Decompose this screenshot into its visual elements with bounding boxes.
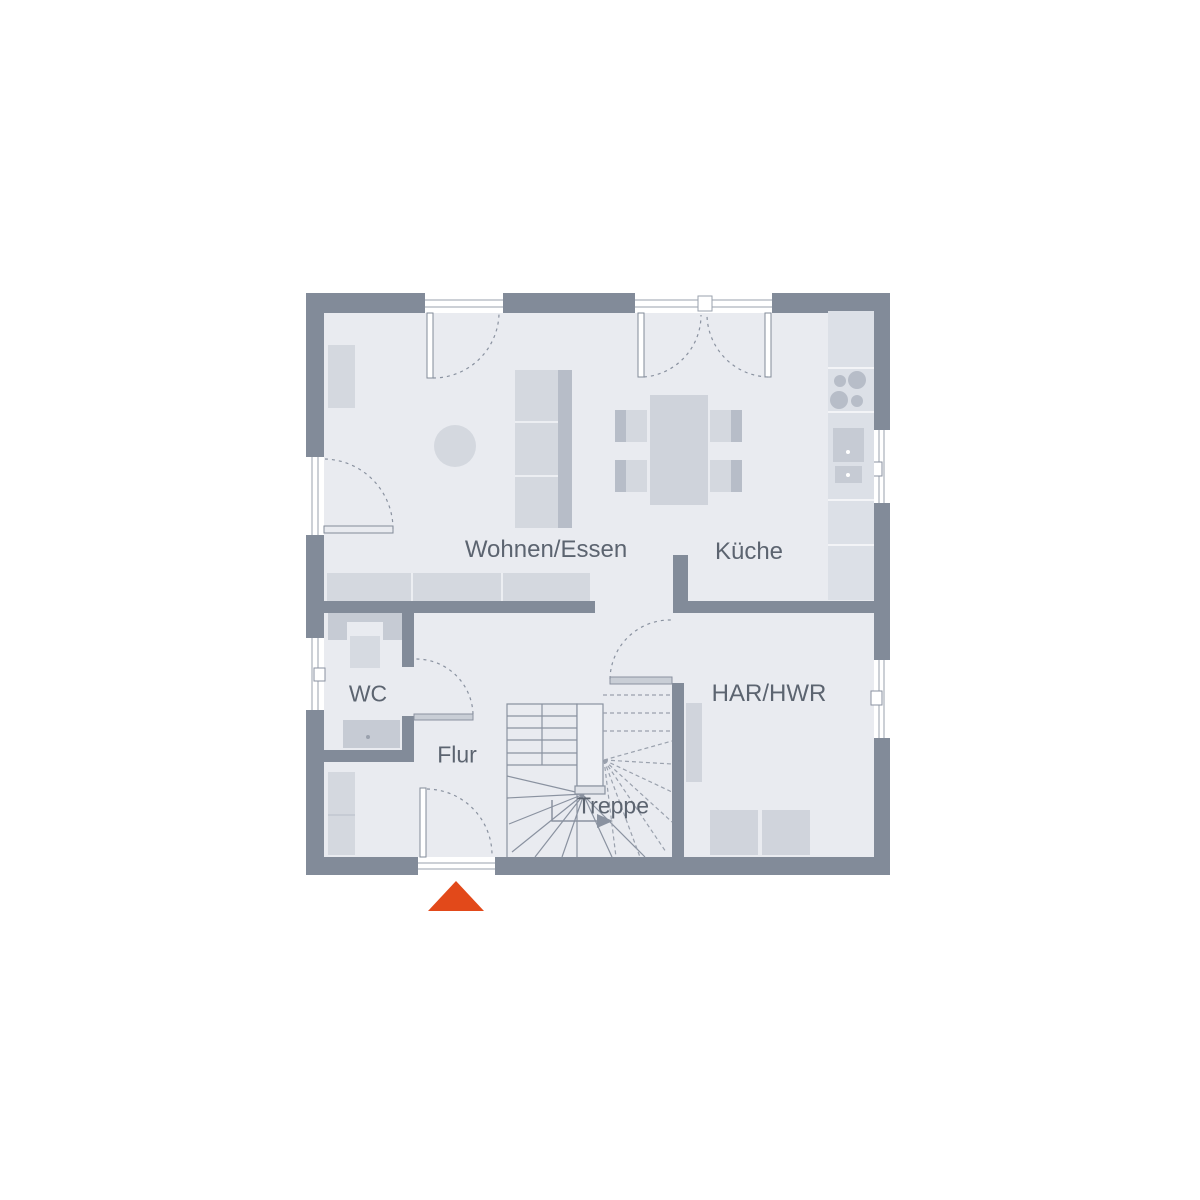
wc-door-leaf xyxy=(414,714,473,720)
stair-void xyxy=(577,704,603,786)
sofa xyxy=(327,573,590,601)
round-rug xyxy=(434,425,476,467)
chair-back-tl xyxy=(615,410,626,442)
wall-bottom xyxy=(306,857,890,875)
sink-drain xyxy=(846,450,850,454)
entrance-door-opening xyxy=(418,857,495,875)
entrance-arrow-icon xyxy=(428,881,484,911)
hall-wardrobe xyxy=(328,772,355,855)
floor-plan-graphic xyxy=(300,280,900,920)
chair-back-bl xyxy=(615,460,626,492)
room-label-flur: Flur xyxy=(437,742,477,769)
wall-stair-right xyxy=(672,683,684,857)
top-left-door-opening xyxy=(425,293,503,313)
room-label-wohnen-essen: Wohnen/Essen xyxy=(465,536,627,564)
entrance-door-leaf xyxy=(420,788,426,857)
room-label-har-hwr: HAR/HWR xyxy=(712,680,827,708)
har-door-leaf xyxy=(610,677,672,684)
floor-plan-page: Wohnen/Essen Küche WC Flur HAR/HWR Trepp… xyxy=(0,0,1200,1200)
chair-back-br xyxy=(731,460,742,492)
wall-top xyxy=(306,293,890,313)
kitchen-sink xyxy=(833,428,864,462)
washbasin xyxy=(343,720,400,748)
wall-wc-right-upper xyxy=(402,613,414,667)
french-door-leaf-right xyxy=(765,313,771,377)
har-window-handle xyxy=(871,691,882,705)
wall-right xyxy=(874,293,890,875)
french-door-leaf-left xyxy=(638,313,644,377)
wall-kitchen-stub xyxy=(673,555,688,613)
wall-living-hall xyxy=(324,601,595,613)
sideboard xyxy=(328,345,355,408)
cooktop-burner-3 xyxy=(830,391,848,409)
french-door-center-post xyxy=(698,296,712,311)
cooktop-burner-4 xyxy=(851,395,863,407)
wall-unit-back xyxy=(558,370,572,528)
top-left-door-leaf xyxy=(427,313,433,378)
drainer-drain xyxy=(846,473,850,477)
room-label-kueche: Küche xyxy=(715,538,783,566)
utility-cabinet xyxy=(686,703,702,782)
wall-wc-bottom xyxy=(324,750,414,762)
wc-window-handle xyxy=(314,668,325,681)
cooktop-burner-2 xyxy=(848,371,866,389)
washbasin-drain xyxy=(366,735,370,739)
dryer xyxy=(762,810,810,855)
room-label-treppe: Treppe xyxy=(577,793,649,820)
terrace-door-leaf xyxy=(324,526,393,533)
wall-kitchen-har xyxy=(688,601,874,613)
room-label-wc: WC xyxy=(349,681,387,708)
wall-left xyxy=(306,293,324,875)
cooktop-burner-1 xyxy=(834,375,846,387)
chair-back-tr xyxy=(731,410,742,442)
terrace-door-opening xyxy=(306,457,324,535)
toilet xyxy=(350,636,380,668)
dining-table xyxy=(650,395,708,505)
washer xyxy=(710,810,758,855)
